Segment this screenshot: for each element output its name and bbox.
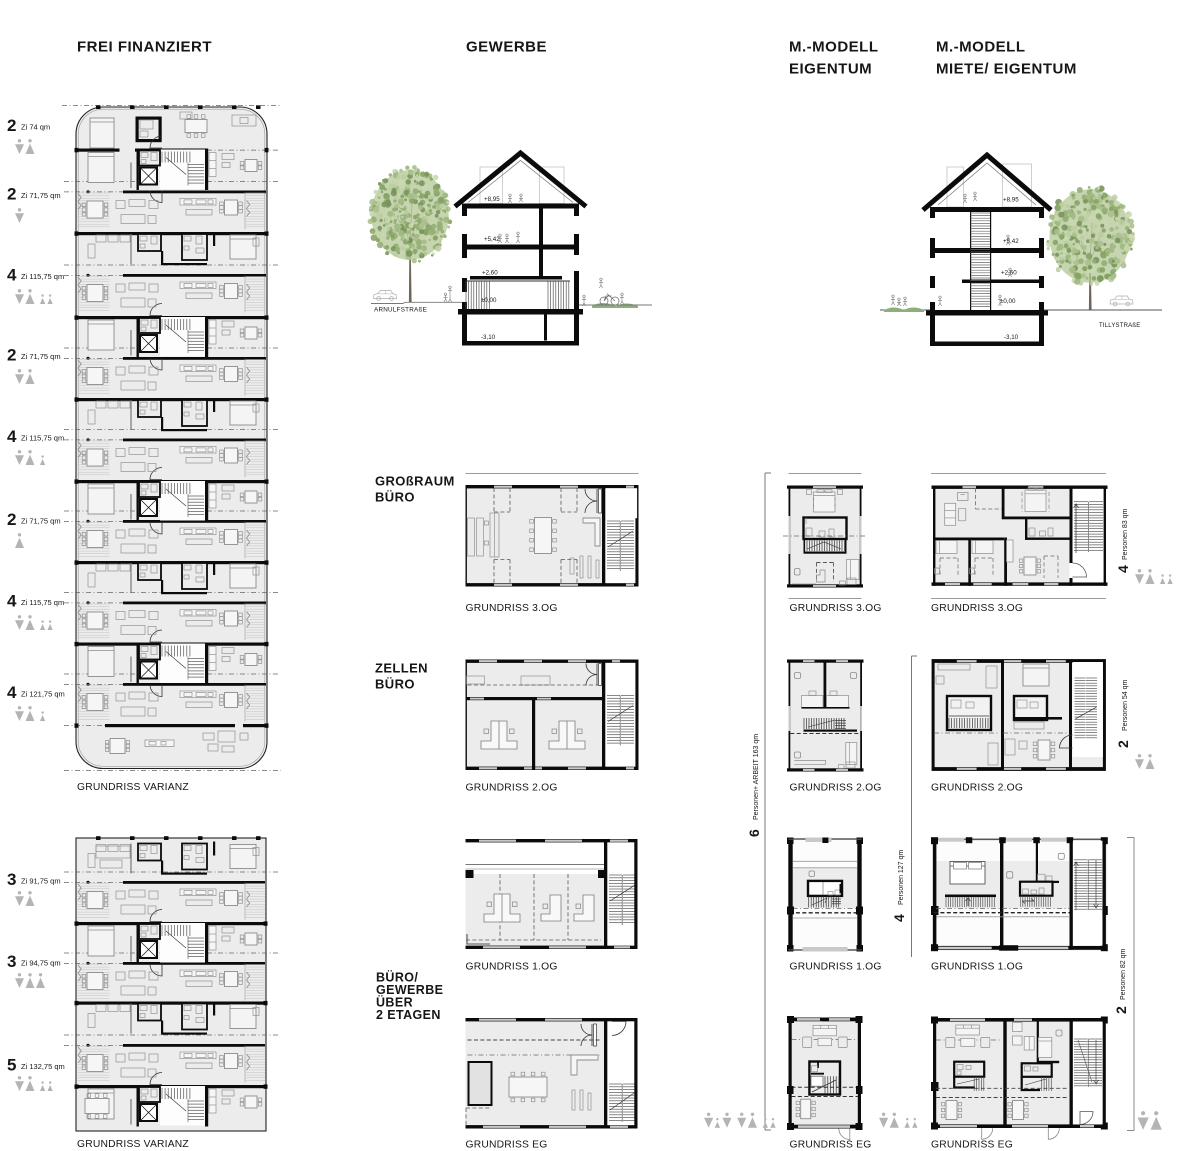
svg-text:GRUNDRISS 3.OG: GRUNDRISS 3.OG [466,603,558,614]
svg-text:4: 4 [7,427,17,446]
svg-text:2: 2 [7,346,16,365]
svg-text:GRUNDRISS 3.OG: GRUNDRISS 3.OG [790,603,882,614]
svg-text:+8,95: +8,95 [484,196,500,203]
svg-text:TILLYSTRAßE: TILLYSTRAßE [1099,323,1140,329]
svg-text:GRUNDRISS 1.OG: GRUNDRISS 1.OG [466,962,558,973]
svg-text:GRUNDRISS 2.OG: GRUNDRISS 2.OG [931,783,1023,794]
svg-text:2 ETAGEN: 2 ETAGEN [376,1008,441,1022]
svg-text:Zi 115,75 qm: Zi 115,75 qm [21,598,64,607]
svg-text:±0,00: ±0,00 [1000,298,1016,305]
svg-text:Personen 82 qm: Personen 82 qm [1120,948,1127,1000]
svg-text:GRUNDRISS 1.OG: GRUNDRISS 1.OG [931,962,1023,973]
svg-text:2: 2 [1115,740,1131,748]
svg-text:Personen 54 qm: Personen 54 qm [1122,679,1129,731]
svg-text:FREI FINANZIERT: FREI FINANZIERT [77,39,212,56]
svg-text:4: 4 [7,592,17,611]
svg-text:GRUNDRISS EG: GRUNDRISS EG [931,1140,1013,1151]
svg-text:GRUNDRISS EG: GRUNDRISS EG [466,1140,548,1151]
svg-text:+5,42: +5,42 [484,236,500,243]
svg-text:-3,10: -3,10 [481,334,496,341]
svg-text:GEWERBE: GEWERBE [466,39,547,56]
svg-text:Zi 71,75 qm: Zi 71,75 qm [21,191,61,200]
svg-text:GRUNDRISS 2.OG: GRUNDRISS 2.OG [790,783,882,794]
svg-text:EIGENTUM: EIGENTUM [789,61,872,78]
svg-text:Personen 83 qm: Personen 83 qm [1122,508,1129,560]
svg-text:Zi 115,75 qm: Zi 115,75 qm [21,433,64,442]
svg-text:MIETE/ EIGENTUM: MIETE/ EIGENTUM [936,61,1077,78]
svg-text:M.-MODELL: M.-MODELL [789,39,878,56]
svg-text:4: 4 [7,266,17,285]
svg-text:GRUNDRISS 1.OG: GRUNDRISS 1.OG [790,962,882,973]
svg-text:BÜRO: BÜRO [375,490,415,505]
svg-text:GRUNDRISS VARIANZ: GRUNDRISS VARIANZ [77,782,189,793]
svg-text:Zi 74 qm: Zi 74 qm [21,123,50,132]
svg-text:Personen 127 qm: Personen 127 qm [898,850,905,905]
svg-text:GRUNDRISS EG: GRUNDRISS EG [790,1140,872,1151]
svg-text:Zi 71,75 qm: Zi 71,75 qm [21,517,61,526]
svg-text:GROßRAUM: GROßRAUM [375,474,455,489]
svg-text:Zi 115,75 qm: Zi 115,75 qm [21,272,64,281]
svg-text:GRUNDRISS VARIANZ: GRUNDRISS VARIANZ [77,1139,189,1150]
svg-text:ARNULFSTRAßE: ARNULFSTRAßE [374,307,427,314]
svg-text:4: 4 [1115,565,1131,573]
svg-text:3: 3 [7,870,16,889]
svg-text:ZELLEN: ZELLEN [375,661,428,676]
svg-text:Personen+ ARBEIT 163 qm: Personen+ ARBEIT 163 qm [753,734,760,820]
svg-text:4: 4 [891,914,907,922]
svg-text:Zi 91,75 qm: Zi 91,75 qm [21,877,61,886]
svg-text:2: 2 [7,510,16,529]
svg-text:2: 2 [1113,1006,1129,1014]
svg-text:Zi 94,75 qm: Zi 94,75 qm [21,959,61,968]
svg-text:GRUNDRISS 3.OG: GRUNDRISS 3.OG [931,603,1023,614]
svg-text:3: 3 [7,952,16,971]
svg-text:GRUNDRISS 2.OG: GRUNDRISS 2.OG [466,783,558,794]
svg-text:BÜRO: BÜRO [375,677,415,692]
svg-text:Zi 71,75 qm: Zi 71,75 qm [21,352,61,361]
svg-text:-3,10: -3,10 [1004,334,1019,341]
svg-text:2: 2 [7,185,16,204]
svg-text:Zi 132,75 qm: Zi 132,75 qm [21,1062,65,1071]
svg-text:M.-MODELL: M.-MODELL [936,39,1025,56]
svg-text:4: 4 [7,683,17,702]
svg-text:+5,42: +5,42 [1003,238,1019,245]
svg-text:5: 5 [7,1056,16,1075]
svg-text:±0,00: ±0,00 [481,297,497,304]
svg-text:+2,60: +2,60 [482,270,498,277]
svg-text:6: 6 [746,829,762,837]
svg-text:2: 2 [7,116,16,135]
svg-text:+8,95: +8,95 [1003,197,1019,204]
svg-text:Zi 121,75 qm: Zi 121,75 qm [21,690,65,699]
